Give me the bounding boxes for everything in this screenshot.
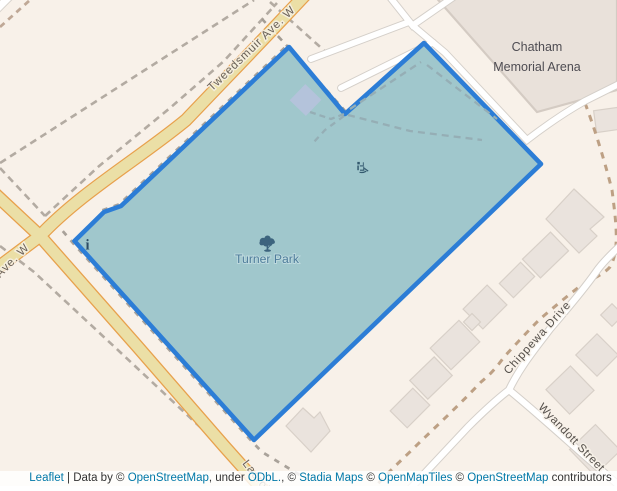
svg-text:Memorial Arena: Memorial Arena [493, 60, 581, 74]
svg-text:i: i [85, 238, 89, 254]
svg-text:Chatham: Chatham [512, 40, 563, 54]
svg-text:Turner Park: Turner Park [235, 252, 300, 266]
